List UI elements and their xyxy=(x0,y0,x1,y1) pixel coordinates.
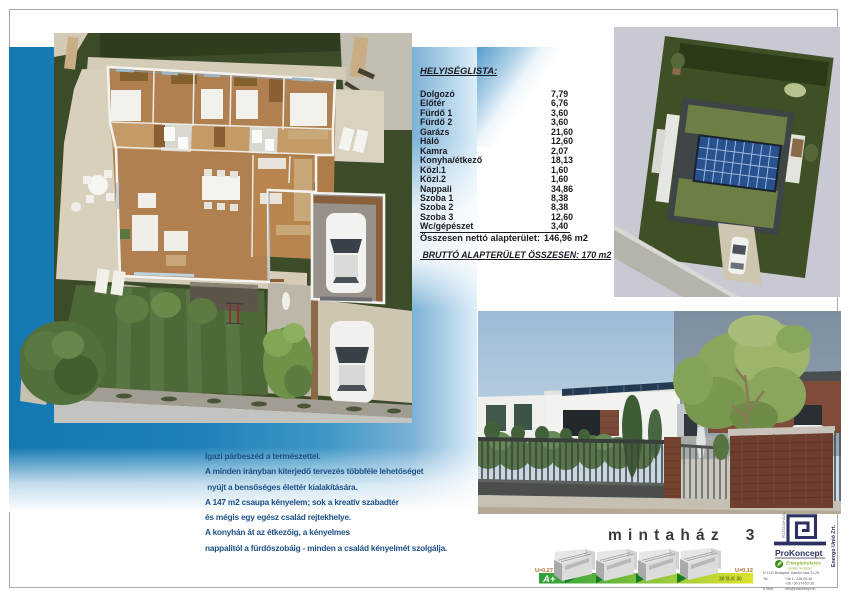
svg-text:30 B-K 30: 30 B-K 30 xyxy=(719,577,742,583)
svg-text:U=0,12: U=0,12 xyxy=(735,568,753,574)
svg-text:A+: A+ xyxy=(542,574,556,585)
svg-text:Energo Unió Zrt.: Energo Unió Zrt. xyxy=(831,524,837,567)
svg-text:U=0,27: U=0,27 xyxy=(535,568,553,574)
svg-text:E-Mail :: E-Mail : xyxy=(763,587,775,591)
svg-text:ProKoncept: ProKoncept xyxy=(775,548,823,558)
svg-text:info@prokoncept.hu: info@prokoncept.hu xyxy=(785,587,816,591)
svg-text:Tel. :: Tel. : xyxy=(763,577,770,581)
svg-text:+36 / 30-274-52-39: +36 / 30-274-52-39 xyxy=(785,582,814,586)
svg-text:építési rendszer: építési rendszer xyxy=(788,567,813,571)
svg-text:H-1131 Budapest, Kámfor utca 2: H-1131 Budapest, Kámfor utca 21-25. xyxy=(763,571,820,575)
svg-text:POZSGAIHÁZA: POZSGAIHÁZA xyxy=(782,512,786,538)
svg-text:+36 1 / 236-06-46: +36 1 / 236-06-46 xyxy=(785,577,812,581)
